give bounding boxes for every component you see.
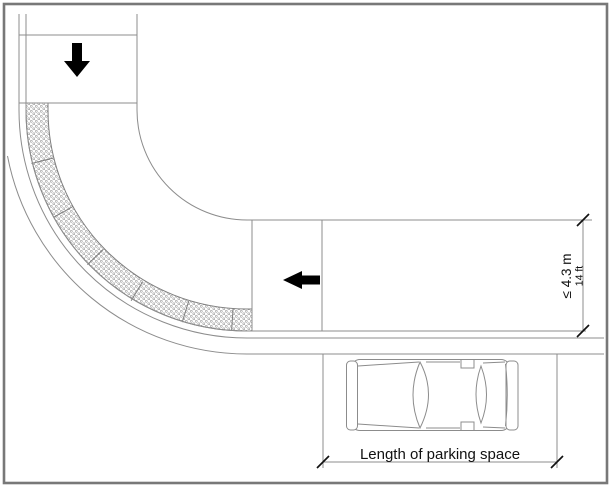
roadway-width-dimension: ≤ 4.3 m 14 ft — [559, 214, 589, 337]
car-mirror-bottom — [461, 422, 474, 431]
roadway-width-imperial-label: 14 ft — [574, 266, 586, 287]
car-hood-edge-top — [358, 362, 419, 366]
car-rear-bumper — [506, 361, 518, 430]
car-mirror-top — [461, 360, 474, 369]
down-arrow-icon — [64, 43, 90, 77]
roadway-width-metric-label: ≤ 4.3 m — [559, 254, 574, 299]
car-rear-window — [476, 366, 487, 423]
diagram-page: ≤ 4.3 m 14 ft Length of parking space — [0, 0, 611, 488]
car-front-bumper — [347, 361, 358, 430]
diagram-canvas: ≤ 4.3 m 14 ft Length of parking space — [0, 0, 611, 488]
car-windshield — [413, 362, 429, 428]
no-parking-hatch-band — [26, 103, 252, 331]
car-deck-edge-bottom — [483, 427, 505, 428]
car-deck-edge-top — [483, 362, 505, 363]
road-outline — [8, 14, 605, 354]
parking-length-label: Length of parking space — [360, 446, 520, 463]
inner-road-edge-line — [137, 14, 592, 220]
parked-car-icon — [347, 360, 519, 431]
left-arrow-icon — [283, 271, 320, 289]
outer-curb-line — [19, 14, 604, 338]
hatch-band-area — [26, 103, 252, 331]
car-hood-edge-bottom — [358, 424, 419, 428]
